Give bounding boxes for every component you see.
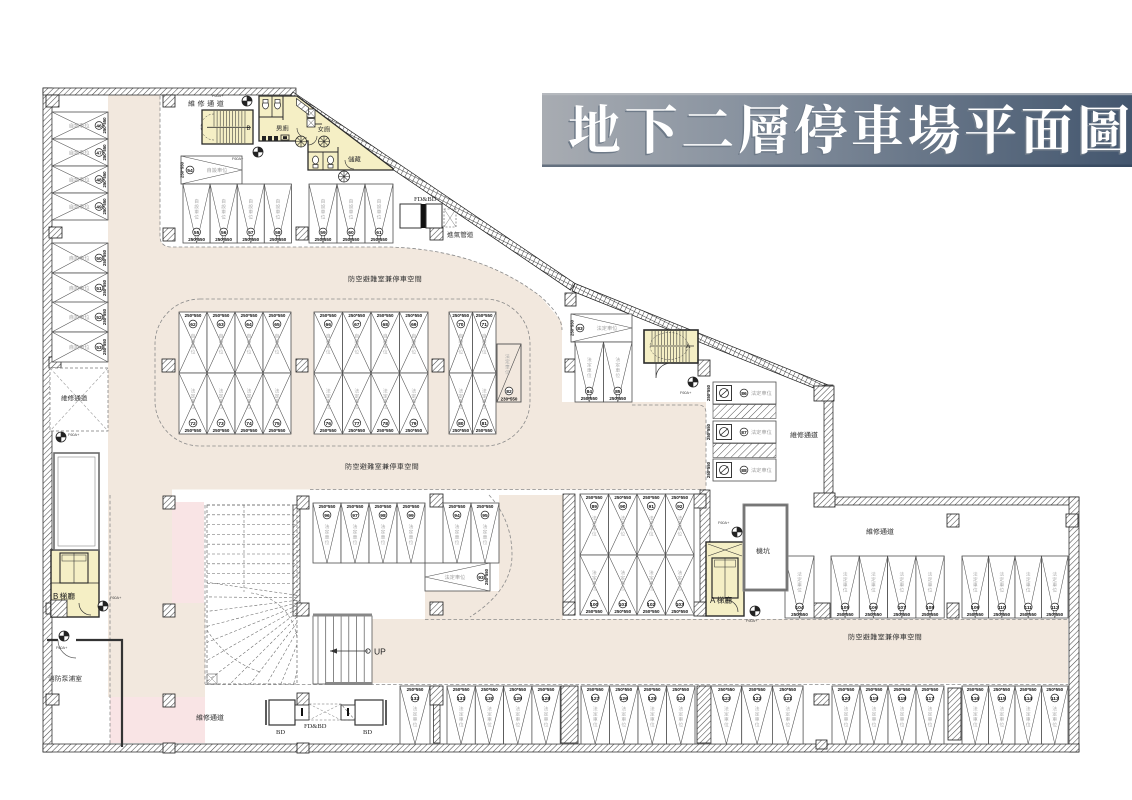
svg-text:92: 92 [677, 504, 683, 510]
svg-text:F60A+: F60A+ [718, 521, 730, 525]
svg-text:250*550: 250*550 [967, 612, 984, 617]
svg-text:60: 60 [348, 230, 354, 236]
svg-text:250*550: 250*550 [671, 609, 688, 614]
svg-text:250*550: 250*550 [1046, 687, 1063, 692]
svg-text:132: 132 [411, 696, 419, 702]
svg-text:130: 130 [485, 696, 493, 702]
svg-text:112: 112 [1051, 605, 1059, 611]
svg-text:250*550: 250*550 [893, 612, 910, 617]
svg-text:250*550: 250*550 [185, 428, 202, 433]
svg-text:B: B [247, 126, 251, 132]
svg-text:250*550: 250*550 [213, 313, 230, 318]
svg-text:250*550: 250*550 [643, 495, 660, 500]
svg-text:250*550: 250*550 [452, 313, 469, 318]
svg-text:129: 129 [514, 696, 522, 702]
svg-text:250*550: 250*550 [371, 237, 388, 242]
svg-text:250*550: 250*550 [587, 687, 604, 692]
svg-text:250*550: 250*550 [476, 428, 493, 433]
svg-text:65: 65 [274, 322, 280, 328]
svg-text:250*550: 250*550 [269, 313, 286, 318]
svg-text:250*550: 250*550 [1046, 612, 1063, 617]
svg-text:250*550: 250*550 [102, 338, 107, 355]
svg-text:69: 69 [411, 322, 417, 328]
svg-text:73: 73 [218, 421, 224, 427]
svg-text:67: 67 [354, 322, 360, 328]
svg-text:250*550: 250*550 [102, 308, 107, 325]
svg-text:250*550: 250*550 [581, 396, 598, 401]
svg-text:82: 82 [506, 389, 512, 395]
svg-text:250*550: 250*550 [586, 609, 603, 614]
svg-text:102: 102 [647, 602, 655, 608]
svg-text:100: 100 [590, 602, 598, 608]
svg-text:BD: BD [363, 729, 372, 736]
svg-text:250*550: 250*550 [343, 237, 360, 242]
svg-text:250*550: 250*550 [993, 612, 1010, 617]
svg-text:250*550: 250*550 [377, 313, 394, 318]
svg-text:250*550: 250*550 [484, 568, 489, 585]
svg-text:79: 79 [411, 421, 417, 427]
svg-text:250*550: 250*550 [538, 687, 555, 692]
svg-text:250*550: 250*550 [570, 319, 575, 336]
svg-text:250*550: 250*550 [894, 687, 911, 692]
svg-text:86: 86 [741, 391, 747, 397]
svg-text:68: 68 [382, 322, 388, 328]
svg-text:70: 70 [458, 322, 464, 328]
svg-text:94: 94 [454, 513, 460, 519]
svg-text:56: 56 [221, 230, 227, 236]
svg-text:250*550: 250*550 [481, 687, 498, 692]
svg-text:122: 122 [753, 696, 761, 702]
svg-text:250*550: 250*550 [185, 313, 202, 318]
svg-text:114: 114 [1024, 696, 1032, 702]
svg-text:250*550: 250*550 [586, 495, 603, 500]
svg-text:110: 110 [998, 605, 1006, 611]
svg-text:66: 66 [325, 322, 331, 328]
svg-text:250*550: 250*550 [718, 687, 735, 692]
svg-text:250*550: 250*550 [102, 171, 107, 188]
svg-text:F60A+: F60A+ [746, 619, 758, 623]
svg-text:109: 109 [971, 605, 979, 611]
svg-text:250*550: 250*550 [838, 687, 855, 692]
svg-text:250*550: 250*550 [102, 279, 107, 296]
svg-text:250*550: 250*550 [1020, 687, 1037, 692]
svg-text:250*550: 250*550 [405, 313, 422, 318]
svg-text:250*550: 250*550 [449, 504, 466, 509]
svg-text:250*550: 250*550 [320, 428, 337, 433]
svg-text:250*550: 250*550 [922, 612, 939, 617]
svg-text:250*550: 250*550 [270, 237, 287, 242]
svg-text:125: 125 [648, 696, 656, 702]
svg-text:250*550: 250*550 [348, 313, 365, 318]
svg-text:250*550: 250*550 [706, 384, 711, 401]
svg-text:96: 96 [324, 513, 330, 519]
svg-text:59: 59 [320, 230, 326, 236]
svg-text:250*550: 250*550 [477, 504, 494, 509]
svg-text:90: 90 [620, 504, 626, 510]
svg-text:250*550: 250*550 [315, 237, 332, 242]
svg-text:58: 58 [275, 230, 281, 236]
svg-text:250*550: 250*550 [102, 198, 107, 215]
svg-text:B: B [53, 592, 58, 601]
svg-text:120: 120 [842, 696, 850, 702]
svg-text:61: 61 [376, 230, 382, 236]
svg-text:84: 84 [586, 389, 592, 395]
svg-text:250*550: 250*550 [320, 313, 337, 318]
svg-text:250*550: 250*550 [476, 313, 493, 318]
svg-text:250*550: 250*550 [922, 687, 939, 692]
svg-text:88: 88 [741, 468, 747, 474]
svg-text:97: 97 [352, 513, 358, 519]
svg-text:250*550: 250*550 [102, 117, 107, 134]
svg-text:54: 54 [187, 168, 193, 174]
svg-text:250*550: 250*550 [967, 687, 984, 692]
svg-text:250*550: 250*550 [180, 161, 185, 178]
svg-text:250*550: 250*550 [319, 504, 336, 509]
svg-text:250*550: 250*550 [213, 428, 230, 433]
svg-text:250*550: 250*550 [672, 687, 689, 692]
svg-text:126: 126 [620, 696, 628, 702]
svg-text:64: 64 [246, 322, 252, 328]
svg-text:F60A+: F60A+ [212, 94, 224, 98]
svg-text:105: 105 [841, 605, 849, 611]
svg-text:72: 72 [190, 421, 196, 427]
svg-text:FD&BD: FD&BD [414, 196, 437, 203]
svg-text:250*550: 250*550 [706, 461, 711, 478]
svg-text:250*550: 250*550 [377, 428, 394, 433]
svg-text:104: 104 [795, 605, 803, 611]
svg-text:108: 108 [926, 605, 934, 611]
svg-text:119: 119 [870, 696, 878, 702]
svg-text:116: 116 [971, 696, 979, 702]
svg-text:78: 78 [382, 421, 388, 427]
svg-text:250*550: 250*550 [615, 687, 632, 692]
svg-text:250*550: 250*550 [102, 144, 107, 161]
svg-text:124: 124 [677, 696, 685, 702]
svg-text:250*550: 250*550 [614, 609, 631, 614]
svg-text:115: 115 [998, 696, 1006, 702]
svg-text:87: 87 [741, 430, 747, 436]
svg-text:250*550: 250*550 [375, 504, 392, 509]
svg-text:80: 80 [458, 421, 464, 427]
svg-text:81: 81 [481, 421, 487, 427]
svg-text:250*550: 250*550 [347, 504, 364, 509]
svg-text:98: 98 [380, 513, 386, 519]
svg-text:250*550: 250*550 [405, 428, 422, 433]
svg-text:118: 118 [898, 696, 906, 702]
svg-text:250*550: 250*550 [403, 504, 420, 509]
svg-text:111: 111 [1024, 605, 1032, 611]
svg-text:A: A [710, 596, 716, 605]
svg-text:101: 101 [619, 602, 627, 608]
svg-text:250*550: 250*550 [102, 249, 107, 266]
svg-text:A: A [686, 343, 691, 350]
svg-text:F60A+: F60A+ [232, 157, 244, 161]
svg-text:250*550: 250*550 [1020, 612, 1037, 617]
svg-text:103: 103 [676, 602, 684, 608]
svg-text:113: 113 [1051, 696, 1059, 702]
svg-text:250*550: 250*550 [241, 313, 258, 318]
svg-text:117: 117 [926, 696, 934, 702]
svg-text:63: 63 [218, 322, 224, 328]
svg-text:99: 99 [408, 513, 414, 519]
svg-text:250*550: 250*550 [407, 687, 424, 692]
svg-text:250*550: 250*550 [993, 687, 1010, 692]
svg-text:107: 107 [898, 605, 906, 611]
svg-text:F60A+: F60A+ [680, 391, 692, 395]
svg-text:250*550: 250*550 [643, 609, 660, 614]
svg-text:250*550: 250*550 [609, 396, 626, 401]
svg-text:74: 74 [246, 421, 252, 427]
svg-text:250*550: 250*550 [706, 423, 711, 440]
svg-text:77: 77 [354, 421, 360, 427]
svg-text:250*550: 250*550 [269, 428, 286, 433]
svg-text:BD: BD [276, 729, 285, 736]
svg-text:128: 128 [542, 696, 550, 702]
svg-text:106: 106 [869, 605, 877, 611]
svg-text:250*550: 250*550 [671, 495, 688, 500]
svg-text:250*550: 250*550 [791, 612, 808, 617]
svg-text:250*550: 250*550 [779, 687, 796, 692]
svg-text:85: 85 [615, 389, 621, 395]
svg-text:250*550: 250*550 [188, 237, 205, 242]
svg-text:55: 55 [194, 230, 200, 236]
svg-text:76: 76 [325, 421, 331, 427]
svg-text:250*550: 250*550 [452, 428, 469, 433]
svg-text:121: 121 [784, 696, 792, 702]
svg-text:250*550: 250*550 [242, 237, 259, 242]
svg-text:250*550: 250*550 [348, 428, 365, 433]
svg-text:250*550: 250*550 [749, 687, 766, 692]
svg-text:95: 95 [482, 513, 488, 519]
svg-text:71: 71 [481, 322, 487, 328]
svg-text:250*550: 250*550 [453, 687, 470, 692]
svg-text:F60A+: F60A+ [110, 596, 122, 600]
svg-text:250*550: 250*550 [509, 687, 526, 692]
svg-text:F60A+: F60A+ [56, 646, 68, 650]
svg-text:UP: UP [374, 647, 386, 657]
svg-text:FD&BD: FD&BD [304, 723, 327, 730]
svg-text:230*550: 230*550 [501, 397, 518, 402]
svg-text:75: 75 [274, 421, 280, 427]
svg-text:F60A+: F60A+ [68, 433, 80, 437]
svg-text:91: 91 [648, 504, 654, 510]
svg-text:250*550: 250*550 [614, 495, 631, 500]
svg-text:250*550: 250*550 [866, 687, 883, 692]
svg-text:89: 89 [591, 504, 597, 510]
svg-text:57: 57 [248, 230, 254, 236]
svg-text:250*550: 250*550 [644, 687, 661, 692]
svg-text:123: 123 [722, 696, 730, 702]
svg-text:250*550: 250*550 [215, 237, 232, 242]
svg-text:250*550: 250*550 [241, 428, 258, 433]
svg-text:127: 127 [591, 696, 599, 702]
svg-text:62: 62 [190, 322, 196, 328]
svg-text:83: 83 [577, 326, 583, 332]
svg-text:250*550: 250*550 [865, 612, 882, 617]
svg-text:250*550: 250*550 [837, 612, 854, 617]
svg-text:131: 131 [457, 696, 465, 702]
